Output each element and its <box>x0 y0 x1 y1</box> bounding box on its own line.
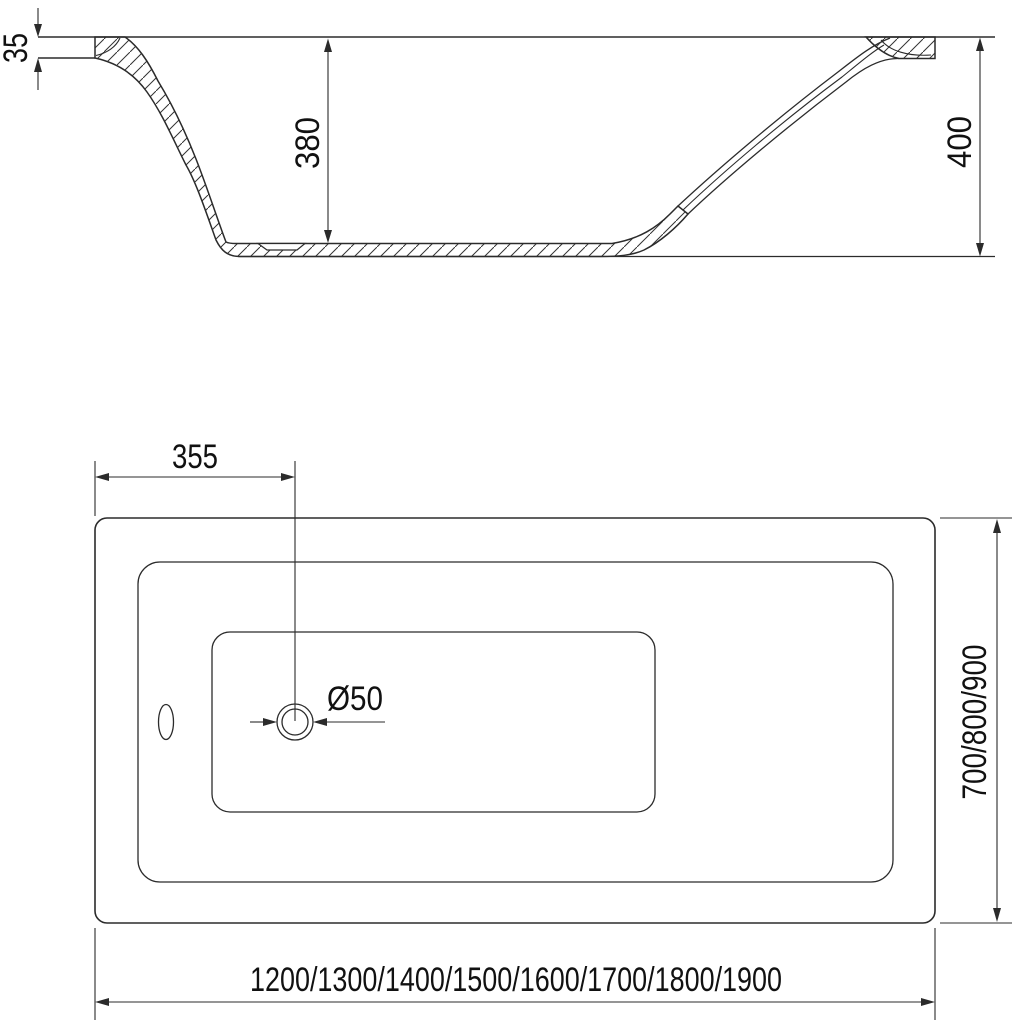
plan-view: 355 Ø50 700/800/900 1200/1300/1400/1 <box>95 438 1012 1020</box>
dim-width-bottom-arrow <box>993 908 1001 922</box>
tub-outer-edge <box>95 518 935 923</box>
dim-length-left-arrow <box>95 998 109 1006</box>
dim-drain-right-arrow <box>313 718 327 726</box>
dim-400-bottom-arrow <box>976 243 984 257</box>
dim-400-top-arrow <box>976 38 984 52</box>
tub-wall-section-hatched <box>95 37 688 257</box>
dim-inner-depth: 380 <box>289 39 332 244</box>
dim-rim-thickness: 35 <box>0 8 42 90</box>
dim-35-upper-arrow <box>34 24 42 37</box>
bathtub-technical-drawing: 35 380 400 <box>0 0 1024 1024</box>
overflow-hole <box>159 705 174 740</box>
dim-overall-height-label: 400 <box>941 116 979 168</box>
slope-wall-middle-line <box>683 45 884 210</box>
floor-drain-recess <box>258 244 305 251</box>
dim-length-options-label: 1200/1300/1400/1500/1600/1700/1800/1900 <box>250 961 782 999</box>
dim-width-options: 700/800/900 <box>940 518 1012 923</box>
dim-rim-thickness-label: 35 <box>0 33 35 63</box>
dim-inner-depth-label: 380 <box>289 117 327 169</box>
dim-355-right-arrow <box>281 473 295 481</box>
dim-drain-diameter-label: Ø50 <box>327 680 383 718</box>
dim-380-top-arrow <box>324 39 332 53</box>
dim-drain-offset-label: 355 <box>172 438 218 476</box>
dim-width-options-label: 700/800/900 <box>956 645 994 800</box>
dim-drain-diameter: Ø50 <box>250 680 385 726</box>
dim-drain-left-arrow <box>263 718 277 726</box>
dim-overall-height: 400 <box>941 38 984 257</box>
dim-35-lower-arrow <box>34 58 42 72</box>
section-view: 35 380 400 <box>0 8 995 257</box>
dim-length-options: 1200/1300/1400/1500/1600/1700/1800/1900 <box>95 928 935 1020</box>
dim-length-right-arrow <box>921 998 935 1006</box>
slope-wall-lower-line <box>688 58 899 214</box>
dim-drain-offset: 355 <box>95 438 295 516</box>
technical-drawing-canvas: 35 380 400 <box>0 0 1024 1024</box>
dim-width-top-arrow <box>993 519 1001 533</box>
tub-floor-edge <box>212 632 655 812</box>
dim-355-left-arrow <box>95 473 109 481</box>
dim-380-bottom-arrow <box>324 230 332 243</box>
